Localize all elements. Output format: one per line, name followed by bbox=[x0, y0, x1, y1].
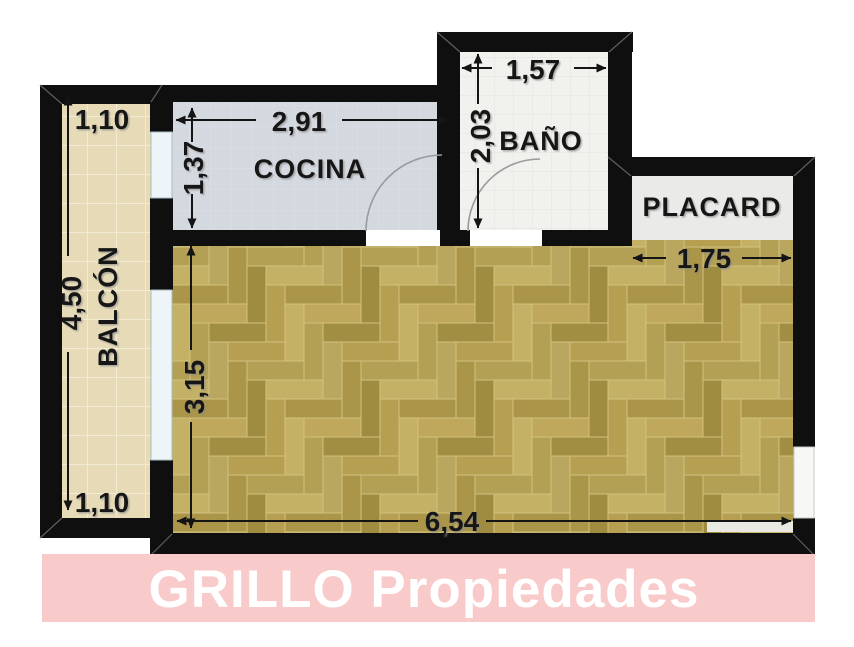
window-right-wall bbox=[794, 447, 814, 518]
living-floor-parquet bbox=[172, 236, 794, 534]
window-balcon-cocina bbox=[151, 132, 172, 198]
dim-balcon-top: 1,10 bbox=[75, 104, 130, 135]
agency-banner-text: GRILLO Propiedades bbox=[148, 560, 699, 619]
window-balcon-living bbox=[151, 290, 172, 460]
dim-living-width: 6,54 bbox=[425, 506, 480, 537]
wall-mid-left bbox=[150, 230, 366, 246]
wall-placard-top bbox=[608, 157, 815, 176]
room-label-placard: PLACARD bbox=[643, 192, 782, 222]
dim-balcon-side: 4,50 bbox=[56, 276, 87, 331]
wall-bottom bbox=[150, 533, 815, 556]
door-opening-bano bbox=[470, 230, 542, 246]
door-opening-cocina bbox=[366, 230, 440, 246]
dim-placard-width: 1,75 bbox=[677, 243, 732, 274]
wall-right-upper bbox=[793, 157, 815, 447]
room-label-balcon: BALCÓN bbox=[92, 245, 123, 367]
wall-bano-top bbox=[437, 32, 633, 52]
agency-banner: GRILLO Propiedades bbox=[42, 554, 815, 622]
floor-plan: 1,10 4,50 1,10 2,91 1,37 1,57 2,03 1,75 … bbox=[0, 0, 854, 647]
room-label-cocina: COCINA bbox=[254, 154, 367, 184]
room-label-bano: BAÑO bbox=[499, 125, 583, 156]
dim-cocina-depth: 1,37 bbox=[178, 141, 209, 196]
wall-bano-right bbox=[608, 32, 632, 240]
dim-living-depth: 3,15 bbox=[179, 360, 210, 415]
wall-bano-left bbox=[437, 32, 460, 246]
dim-bano-depth: 2,03 bbox=[465, 109, 496, 164]
wall-cocina-top bbox=[150, 85, 460, 102]
dim-bano-width: 1,57 bbox=[506, 54, 561, 85]
dim-balcon-bottom: 1,10 bbox=[75, 487, 130, 518]
wall-mid-right bbox=[542, 230, 632, 246]
dim-cocina-width: 2,91 bbox=[272, 106, 327, 137]
door-sill bbox=[707, 521, 793, 532]
floor-plan-page: 1,10 4,50 1,10 2,91 1,37 1,57 2,03 1,75 … bbox=[0, 0, 854, 647]
wall-mid-center bbox=[440, 230, 470, 246]
